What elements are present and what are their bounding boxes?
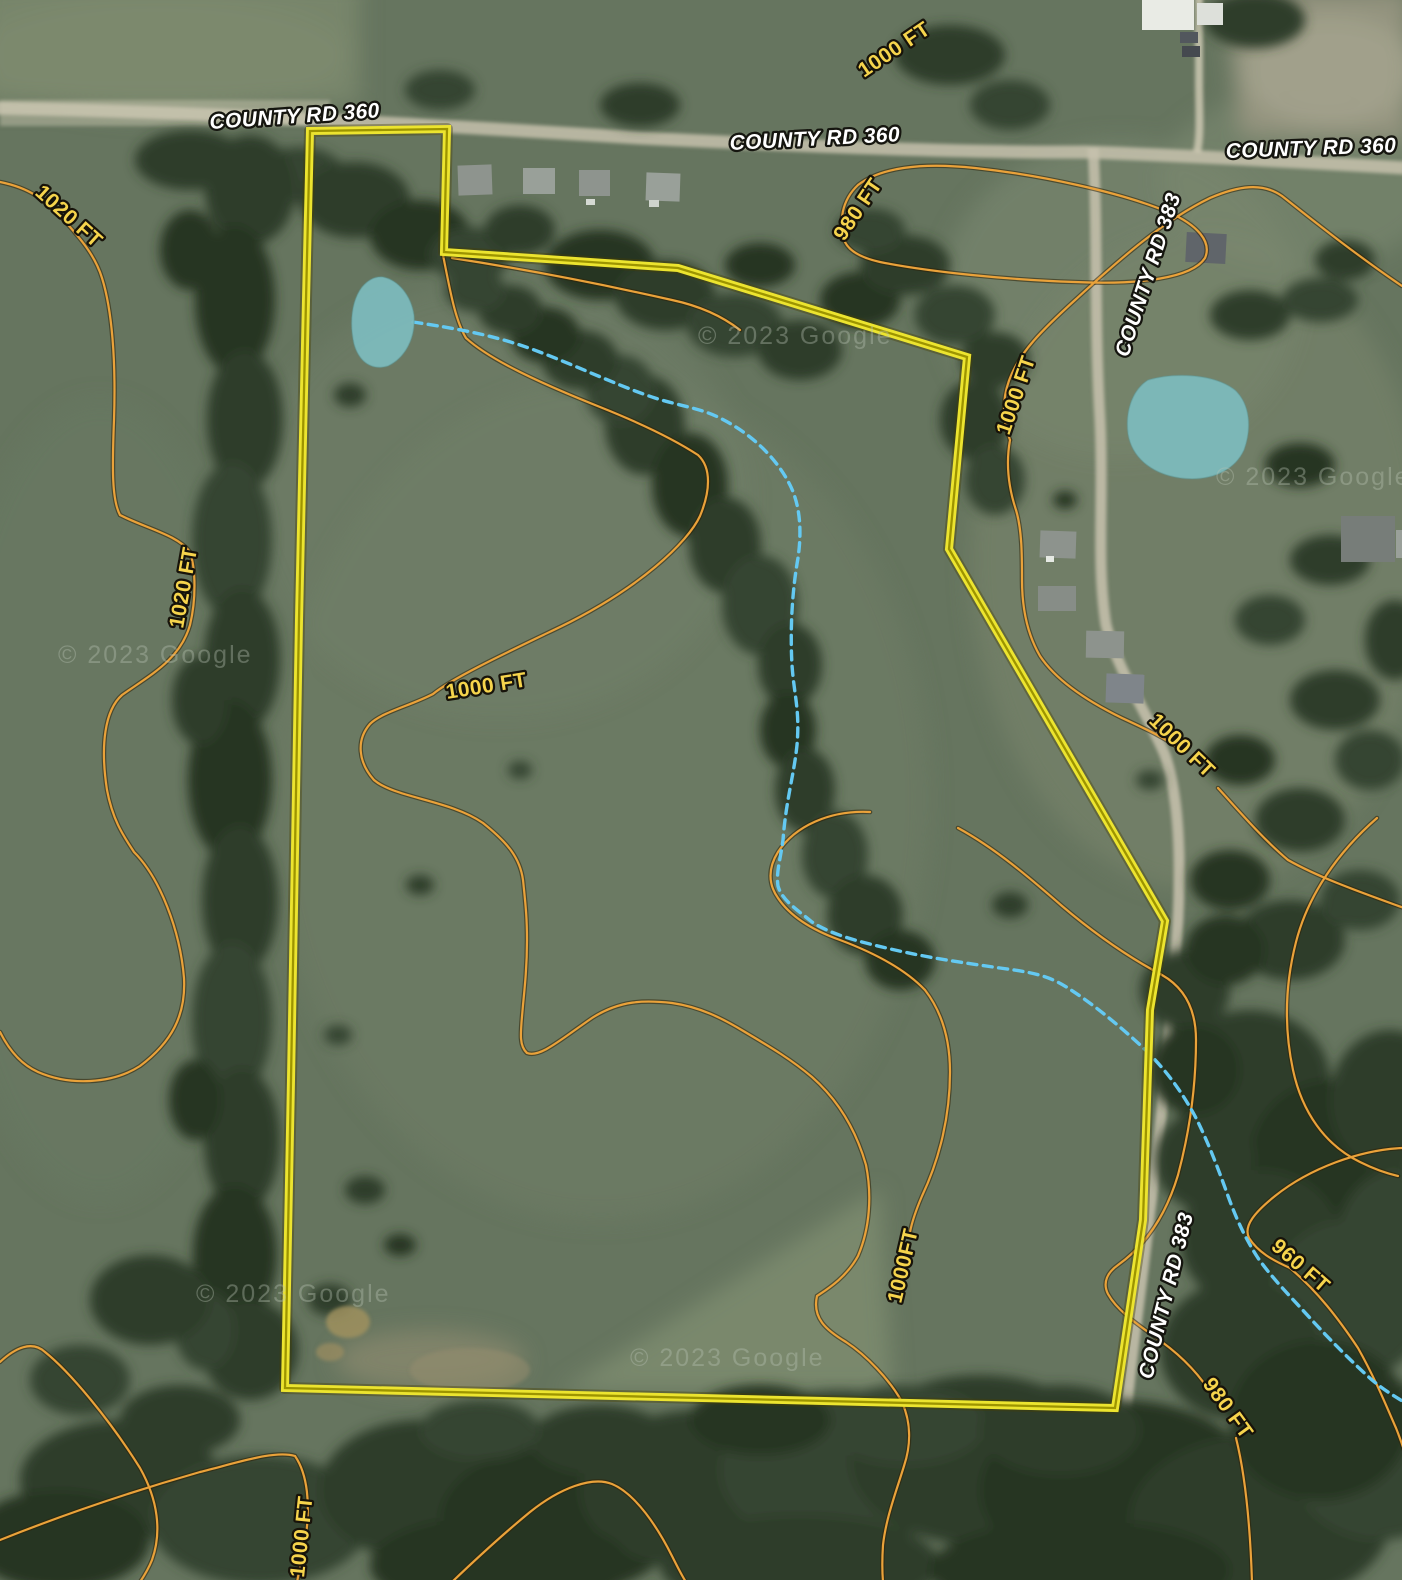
shed [579, 170, 610, 196]
barn [1341, 516, 1395, 562]
shed [1105, 673, 1144, 703]
watermark: © 2023 Google [698, 322, 893, 350]
small-structure [1046, 556, 1054, 562]
small-structure [1396, 530, 1402, 558]
map-canvas[interactable]: © 2023 Google © 2023 Google © 2023 Googl… [0, 0, 1402, 1580]
barn [1142, 0, 1194, 30]
watermark: © 2023 Google [630, 1344, 825, 1372]
vehicle [1180, 32, 1198, 43]
barn [1197, 3, 1223, 25]
small-structure [649, 200, 659, 207]
shed [1086, 631, 1124, 659]
shed [523, 168, 555, 194]
vehicle [1182, 46, 1200, 57]
shed [457, 164, 492, 195]
map-viewport[interactable]: © 2023 Google © 2023 Google © 2023 Googl… [0, 0, 1402, 1580]
shed [1040, 530, 1077, 558]
small-structure [586, 199, 595, 205]
shed [646, 172, 681, 201]
watermark: © 2023 Google [58, 641, 253, 669]
satellite-imagery [0, 0, 1402, 1580]
shed [1038, 586, 1076, 611]
watermark: © 2023 Google [196, 1280, 391, 1308]
watermark: © 2023 Google [1216, 463, 1402, 491]
